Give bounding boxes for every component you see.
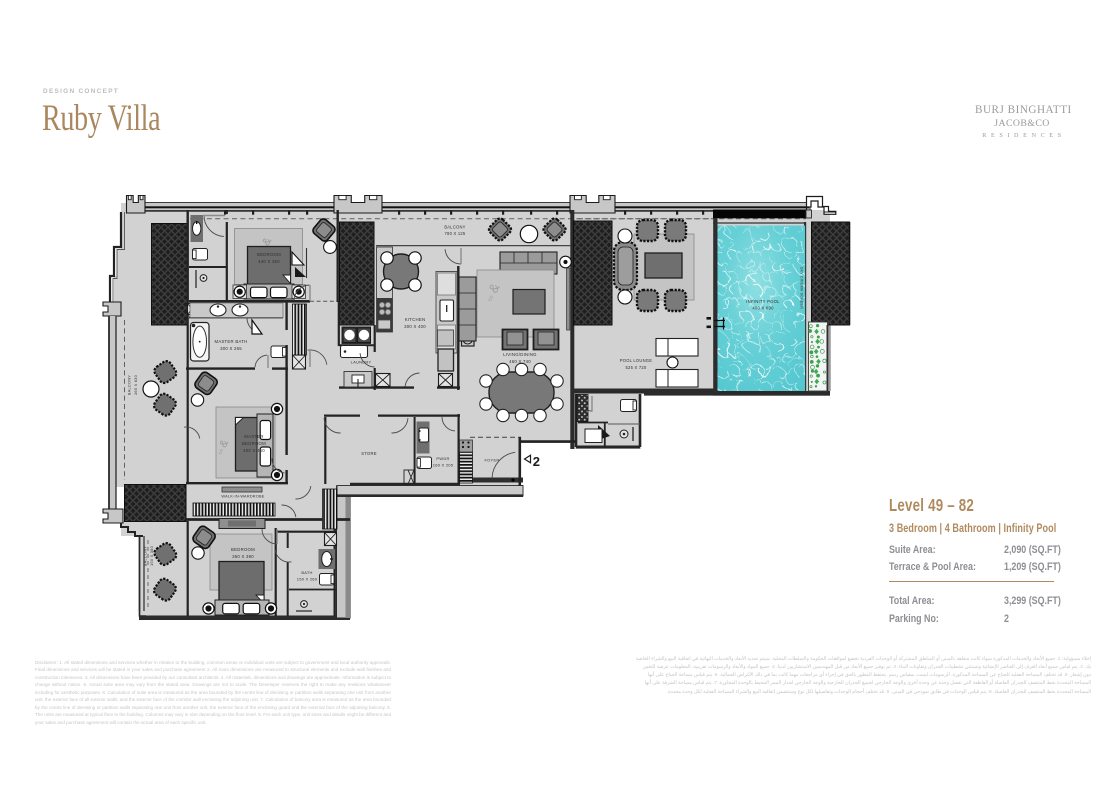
- svg-text:525 X 720: 525 X 720: [626, 365, 647, 370]
- svg-text:LAUNDRY: LAUNDRY: [351, 360, 372, 365]
- svg-text:BATH: BATH: [301, 570, 312, 575]
- svg-text:BALCONY: BALCONY: [127, 375, 132, 395]
- svg-text:780 X 125: 780 X 125: [445, 231, 466, 236]
- svg-text:LIVING/DINING: LIVING/DINING: [503, 352, 537, 357]
- svg-text:STORE: STORE: [361, 451, 377, 456]
- svg-text:SKY CINEMA SCREEN: SKY CINEMA SCREEN: [799, 267, 803, 309]
- svg-text:150 X 380: 150 X 380: [149, 545, 154, 566]
- svg-text:BEDROOM: BEDROOM: [257, 252, 281, 257]
- svg-text:2: 2: [533, 454, 540, 469]
- svg-text:MASTER: MASTER: [244, 434, 263, 439]
- svg-text:BEDROOM: BEDROOM: [231, 547, 255, 552]
- svg-text:WALK-IN-WARDROBE: WALK-IN-WARDROBE: [221, 495, 264, 499]
- svg-text:BEDROOM: BEDROOM: [242, 441, 266, 446]
- svg-text:BALCONY: BALCONY: [444, 225, 465, 230]
- svg-text:400 X 690: 400 X 690: [752, 306, 774, 311]
- svg-text:FOYER: FOYER: [484, 458, 499, 463]
- svg-text:POOL LOUNGE: POOL LOUNGE: [620, 358, 652, 363]
- svg-text:160 X 205: 160 X 205: [433, 463, 454, 468]
- svg-text:360 X 390: 360 X 390: [232, 554, 254, 559]
- svg-text:KITCHEN: KITCHEN: [405, 317, 426, 322]
- svg-text:400 X 450: 400 X 450: [243, 448, 265, 453]
- svg-text:150 X 260: 150 X 260: [297, 577, 318, 582]
- svg-text:INFINITY POOL: INFINITY POOL: [746, 299, 780, 304]
- svg-text:300 X 265: 300 X 265: [220, 346, 242, 351]
- svg-text:440 X 350: 440 X 350: [258, 259, 280, 264]
- svg-text:MASTER BATH: MASTER BATH: [215, 339, 248, 344]
- svg-text:265 X 630: 265 X 630: [133, 374, 138, 395]
- svg-text:PWDR: PWDR: [436, 456, 449, 461]
- svg-text:300 X 400: 300 X 400: [404, 324, 426, 329]
- svg-text:BALCONY: BALCONY: [143, 546, 148, 566]
